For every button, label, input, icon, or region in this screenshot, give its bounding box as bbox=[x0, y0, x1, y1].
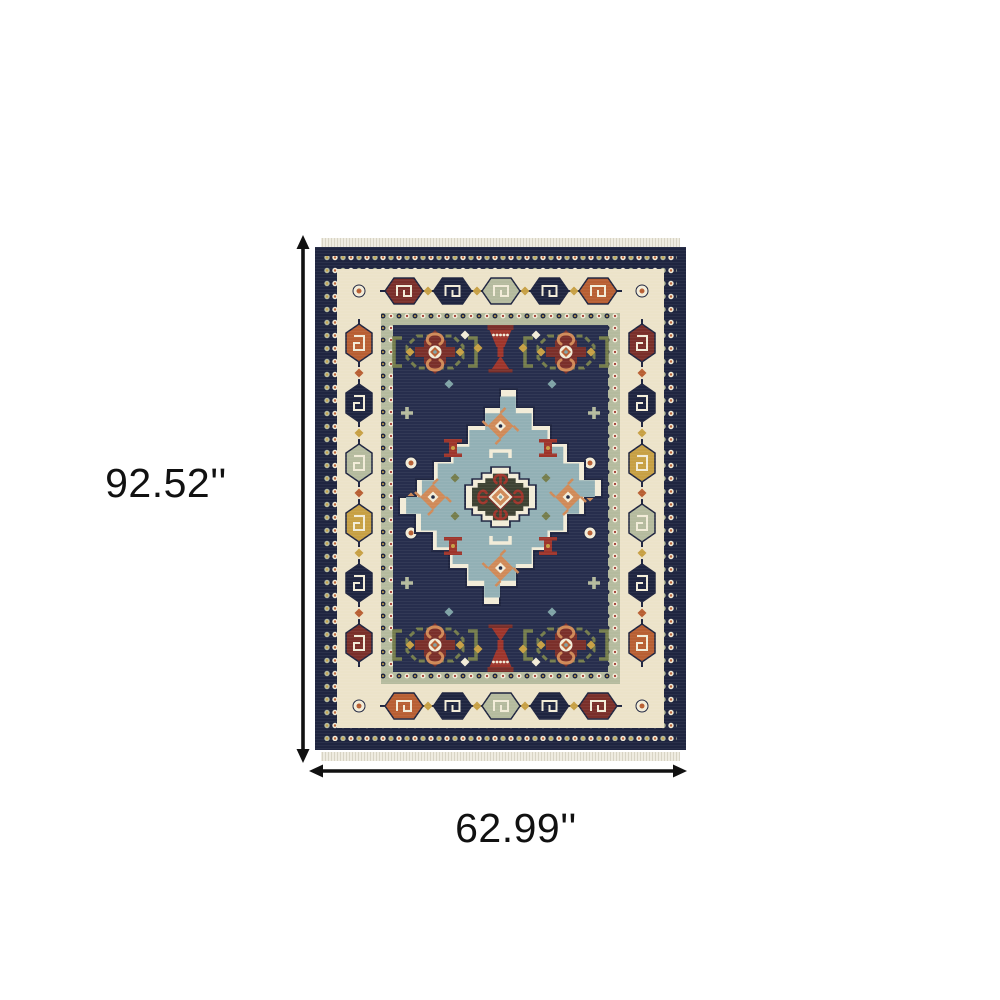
width-dimension-arrow bbox=[307, 759, 689, 783]
rug-image bbox=[315, 238, 686, 761]
arrow-left-icon bbox=[309, 765, 323, 778]
width-dimension-label: 62.99'' bbox=[416, 806, 616, 850]
height-dimension-label: 92.52'' bbox=[66, 461, 266, 505]
product-dimension-diagram: 92.52'' 62.99'' bbox=[0, 0, 1000, 1000]
arrow-up-icon bbox=[297, 235, 310, 249]
height-dimension-arrow bbox=[291, 233, 315, 765]
arrow-right-icon bbox=[673, 765, 687, 778]
rug-weave-texture bbox=[315, 247, 686, 750]
